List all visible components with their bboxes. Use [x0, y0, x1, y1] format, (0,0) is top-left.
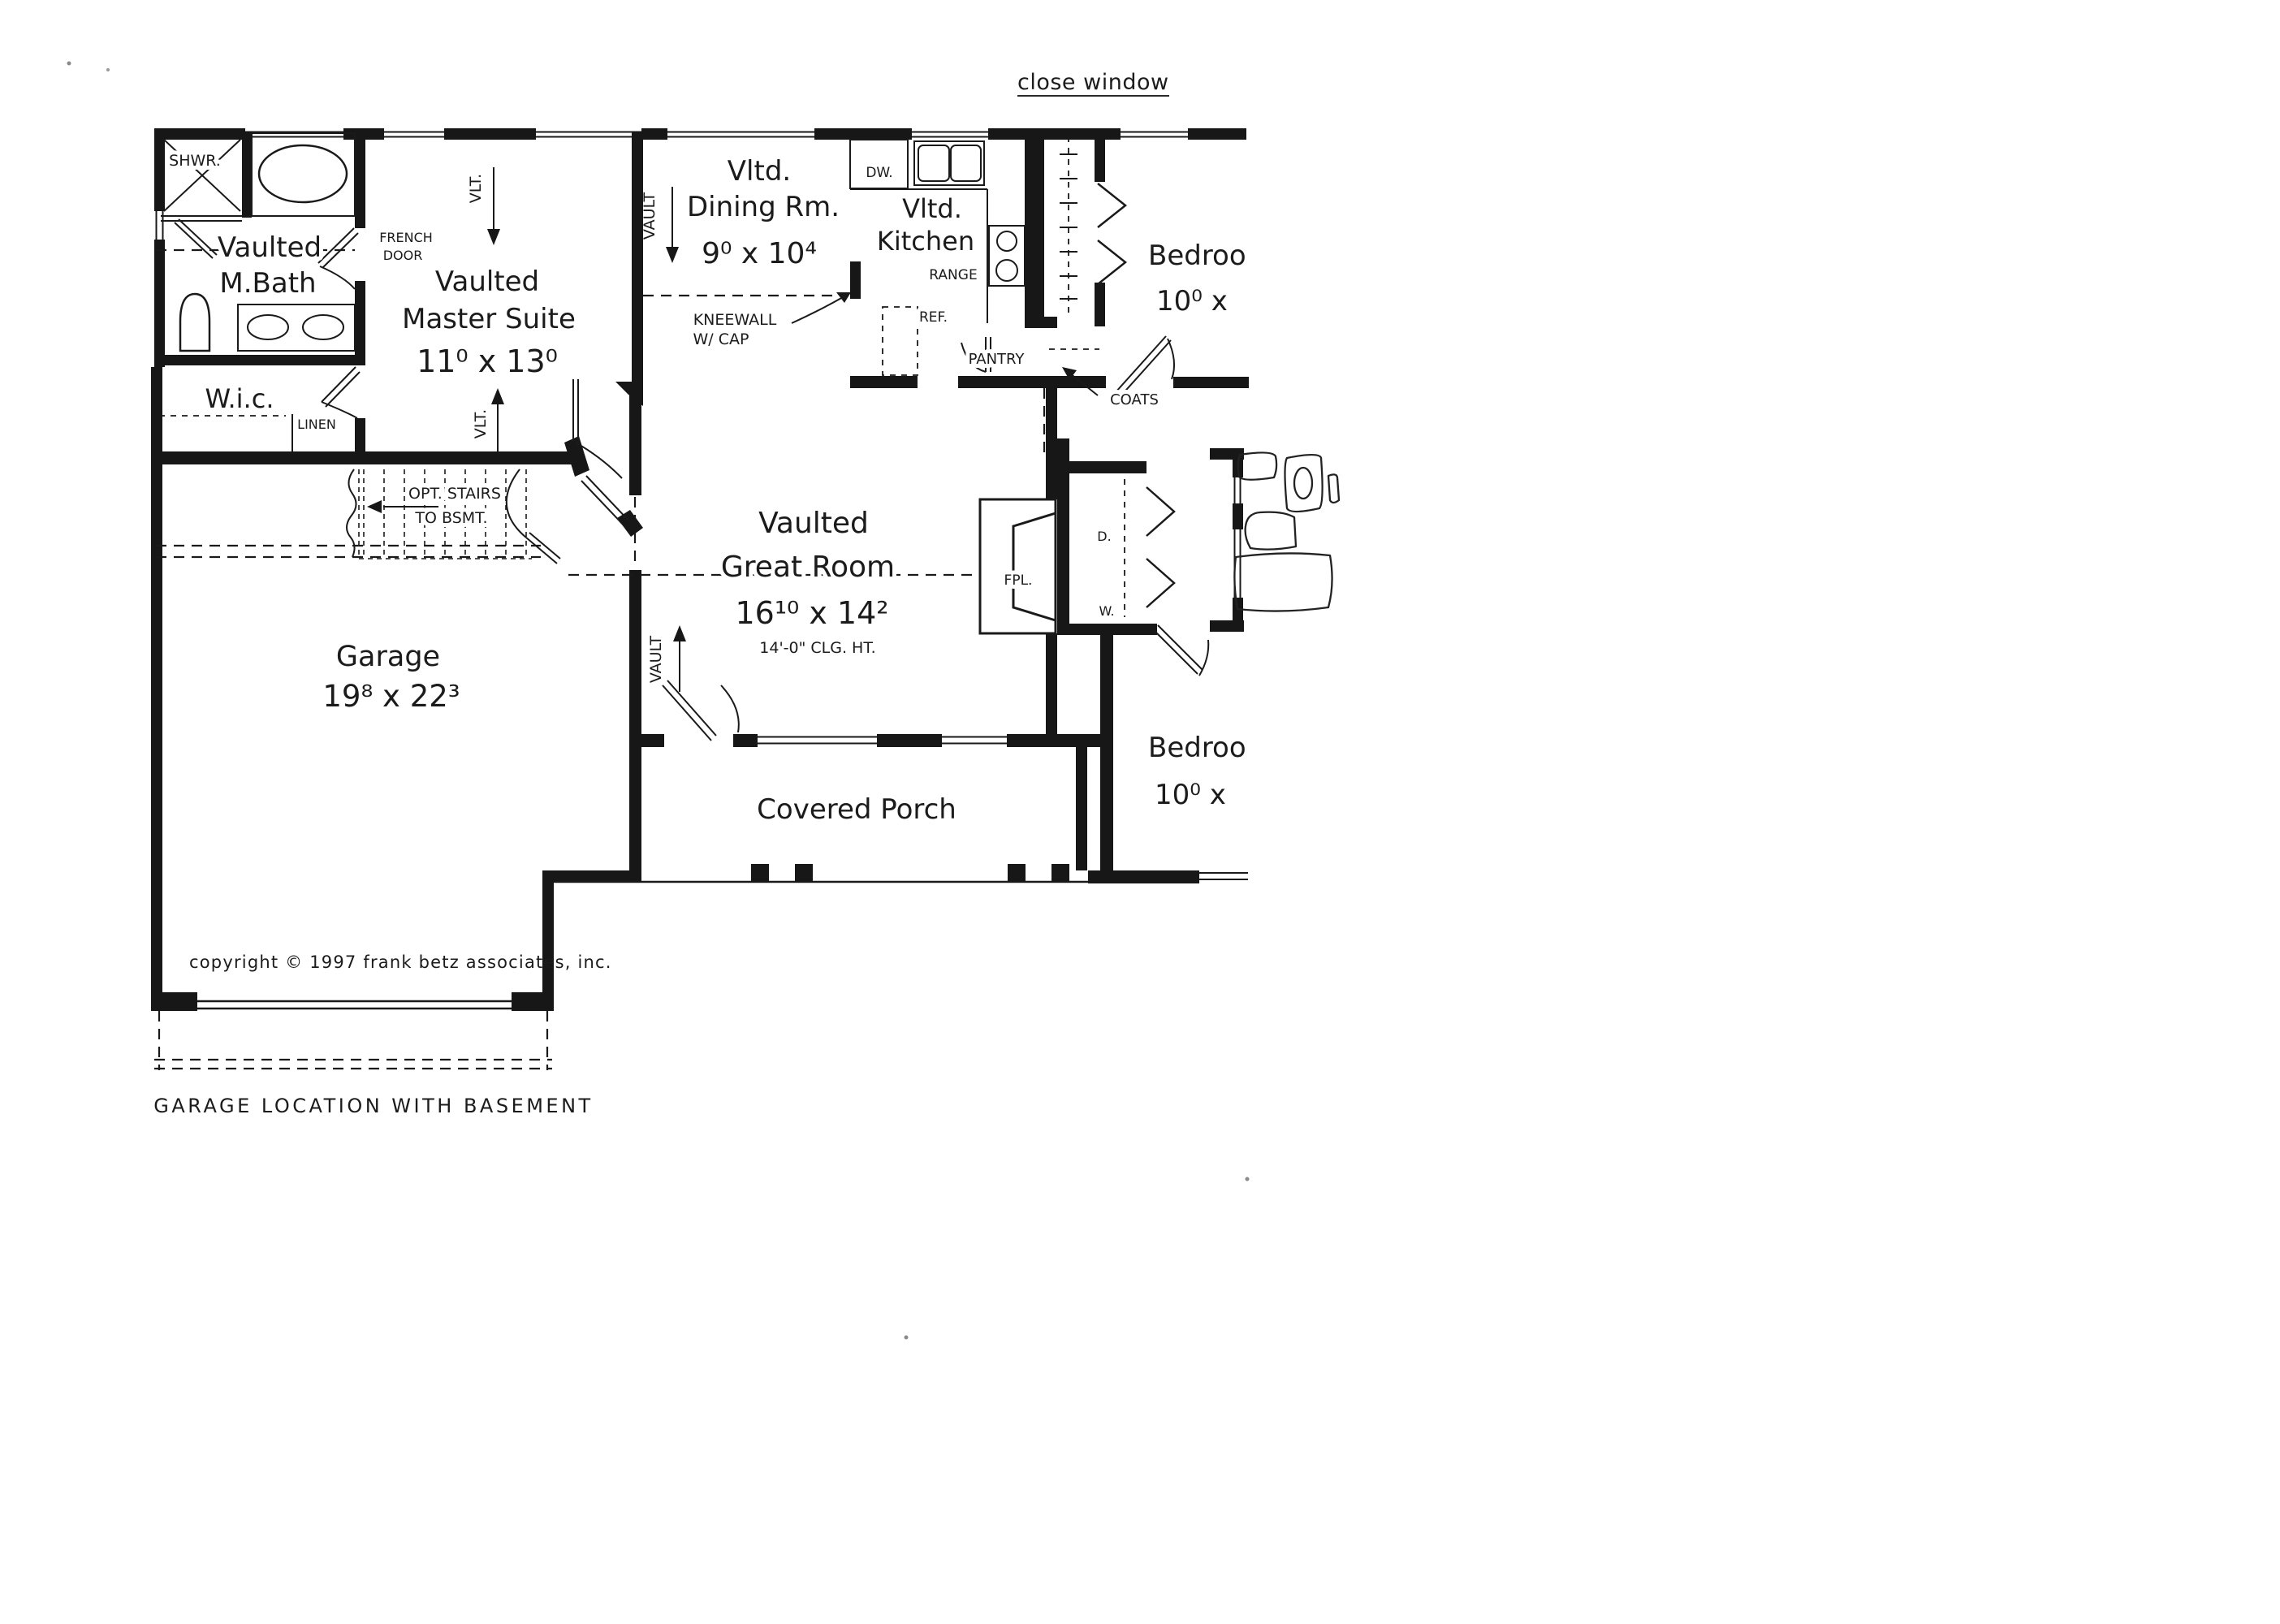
wic-label: W.i.c.: [205, 383, 274, 414]
floor-plan-page: close window: [0, 0, 2280, 1624]
bed1-closet: [1060, 136, 1125, 315]
kitchen-label-2: Kitchen: [877, 226, 974, 257]
garage-apron: [154, 1011, 552, 1070]
garage-dims: 19⁸ x 22³: [322, 679, 460, 714]
great-room-label-1: Vaulted: [758, 507, 869, 540]
bedroom2-label: Bedroo: [1148, 732, 1246, 764]
wic-details: [292, 367, 360, 451]
vanity-double-sink: [238, 304, 355, 351]
vlt-label: VLT.: [472, 409, 490, 438]
dishwasher-label: DW.: [866, 165, 892, 181]
vault-arrows: VLT. VLT. VAULT VAULT: [467, 167, 686, 692]
garage-label: Garage: [336, 641, 440, 673]
great-room-dims: 16¹⁰ x 14²: [735, 595, 888, 631]
master-label-1: Vaulted: [435, 266, 539, 298]
copyright-text: copyright © 1997 frank betz associates, …: [189, 952, 612, 972]
washer-label: W.: [1099, 603, 1114, 619]
shower-label: SHWR.: [169, 152, 221, 170]
vlt-label: VLT.: [467, 174, 485, 203]
vault-label: VAULT: [647, 635, 665, 683]
laundry-closet: [1125, 479, 1174, 617]
mbath-label-1: Vaulted: [218, 231, 322, 264]
front-door: [663, 680, 739, 741]
fireplace: [980, 499, 1056, 633]
fridge-label: REF.: [919, 309, 948, 326]
stairs-label-1: OPT. STAIRS: [408, 485, 501, 503]
stairs-label-2: TO BSMT.: [414, 509, 487, 527]
mbath-label-2: M.Bath: [219, 267, 316, 300]
porch-label: Covered Porch: [757, 793, 956, 826]
master-label-2: Master Suite: [402, 303, 576, 335]
bedroom1-label: Bedroo: [1148, 240, 1246, 272]
coats-label: COATS: [1110, 391, 1159, 408]
bedroom2-dims: 10⁰ x: [1155, 779, 1226, 811]
great-room-ceiling: 14'-0" CLG. HT.: [759, 639, 875, 657]
range-label: RANGE: [929, 267, 977, 283]
bed2-door: [1153, 625, 1208, 676]
vlt-arrow-master-top: VLT.: [467, 167, 500, 245]
bathtub: [248, 133, 355, 216]
dining-label-2: Dining Rm.: [687, 191, 840, 223]
bedroom1-dims: 10⁰ x: [1156, 285, 1228, 317]
plan-caption: GARAGE LOCATION WITH BASEMENT: [153, 1095, 593, 1117]
kneewall-arrow: [792, 292, 851, 323]
vault-arrow-dining: VAULT: [641, 187, 679, 263]
dining-label-1: Vltd.: [728, 155, 791, 188]
toilet: [180, 294, 209, 351]
master-dims: 11⁰ x 13⁰: [417, 343, 558, 379]
scan-cut-masks: [1252, 219, 1414, 824]
dryer-label: D.: [1097, 529, 1111, 544]
vault-arrow-great-room: VAULT: [647, 625, 686, 692]
french-door-label-2: DOOR: [383, 248, 423, 263]
linen-label: LINEN: [297, 417, 336, 432]
french-door: [318, 228, 358, 289]
fireplace-label: FPL.: [1004, 572, 1033, 589]
vault-label: VAULT: [641, 192, 659, 240]
kitchen-label-1: Vltd.: [902, 193, 962, 224]
dining-dims: 9⁰ x 10⁴: [702, 237, 817, 270]
great-room-label-2: Great Room: [721, 551, 895, 584]
vlt-arrow-master-bottom: VLT.: [472, 388, 504, 451]
pantry-label: PANTRY: [969, 351, 1026, 368]
kneewall-label-1: KNEEWALL: [693, 311, 777, 329]
kneewall-label-2: W/ CAP: [693, 330, 749, 348]
french-door-label-1: FRENCH: [379, 230, 433, 245]
porch-posts: [751, 864, 1069, 882]
floor-plan-drawing: VLT. VLT. VAULT VAULT SHWR.: [0, 0, 2280, 1624]
cut-room-furniture: [1234, 452, 1339, 611]
